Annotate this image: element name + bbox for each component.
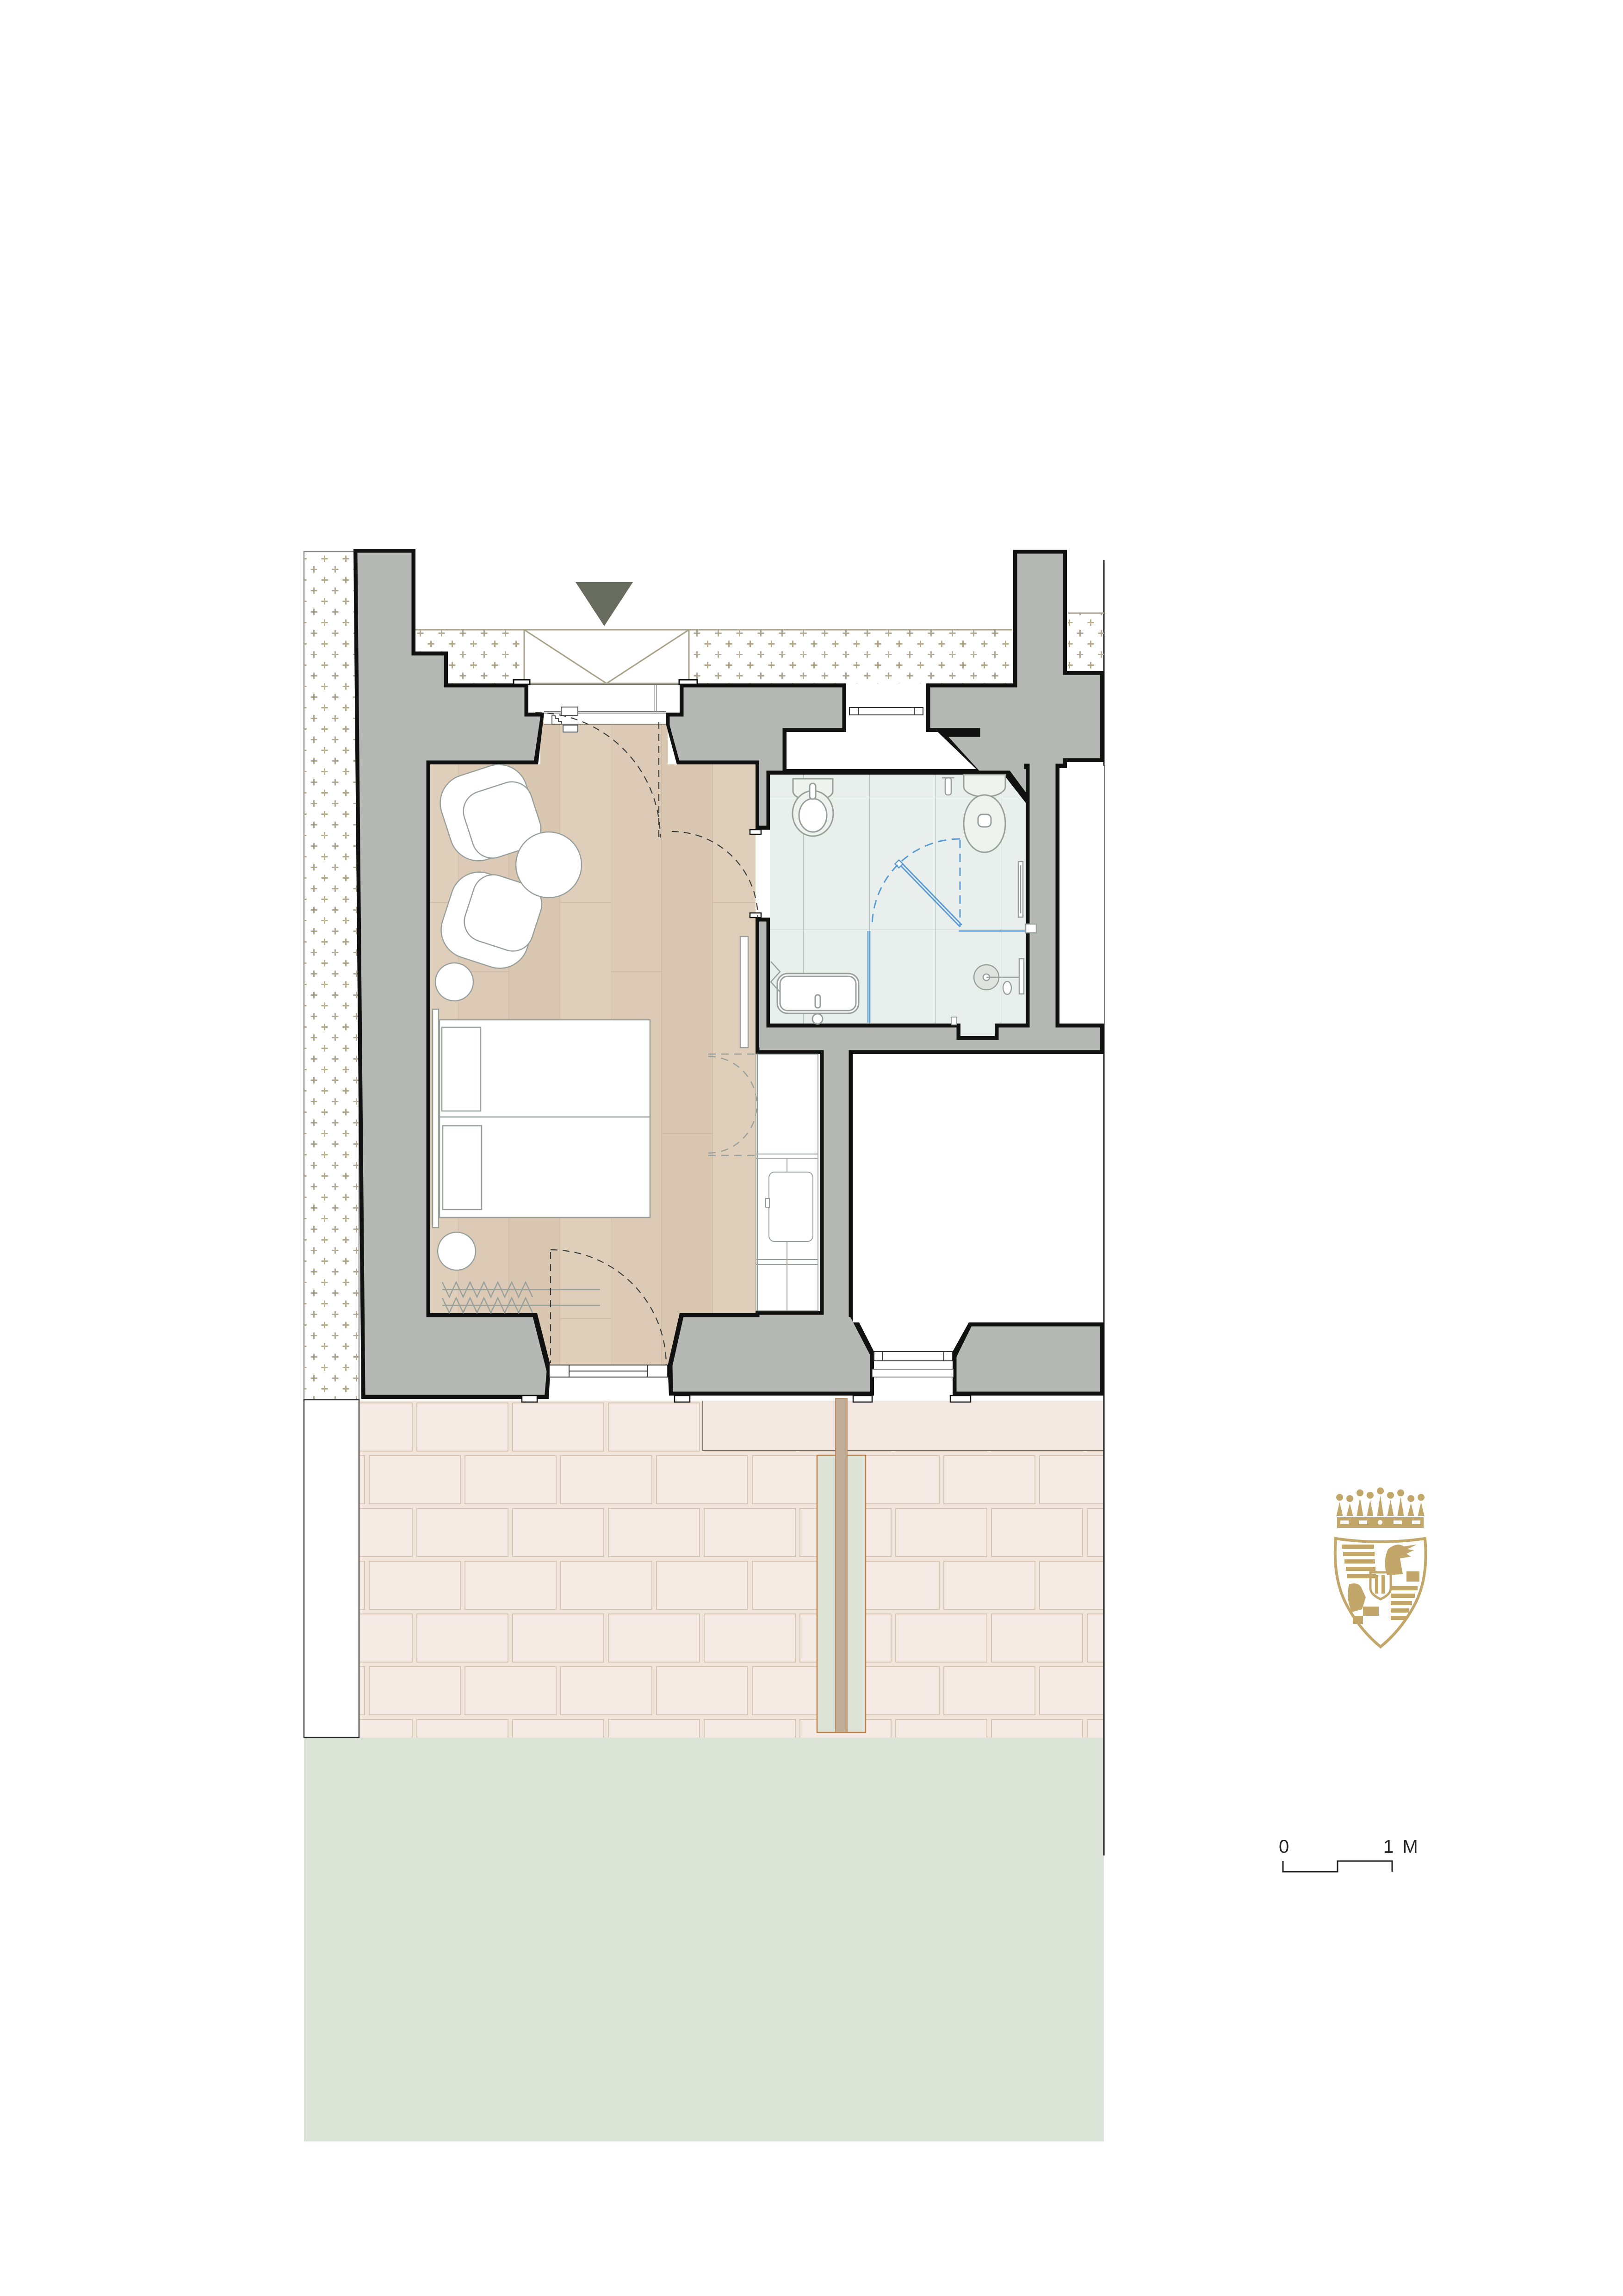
svg-text:0: 0: [1279, 1837, 1289, 1857]
svg-text:1 M: 1 M: [1383, 1837, 1420, 1857]
